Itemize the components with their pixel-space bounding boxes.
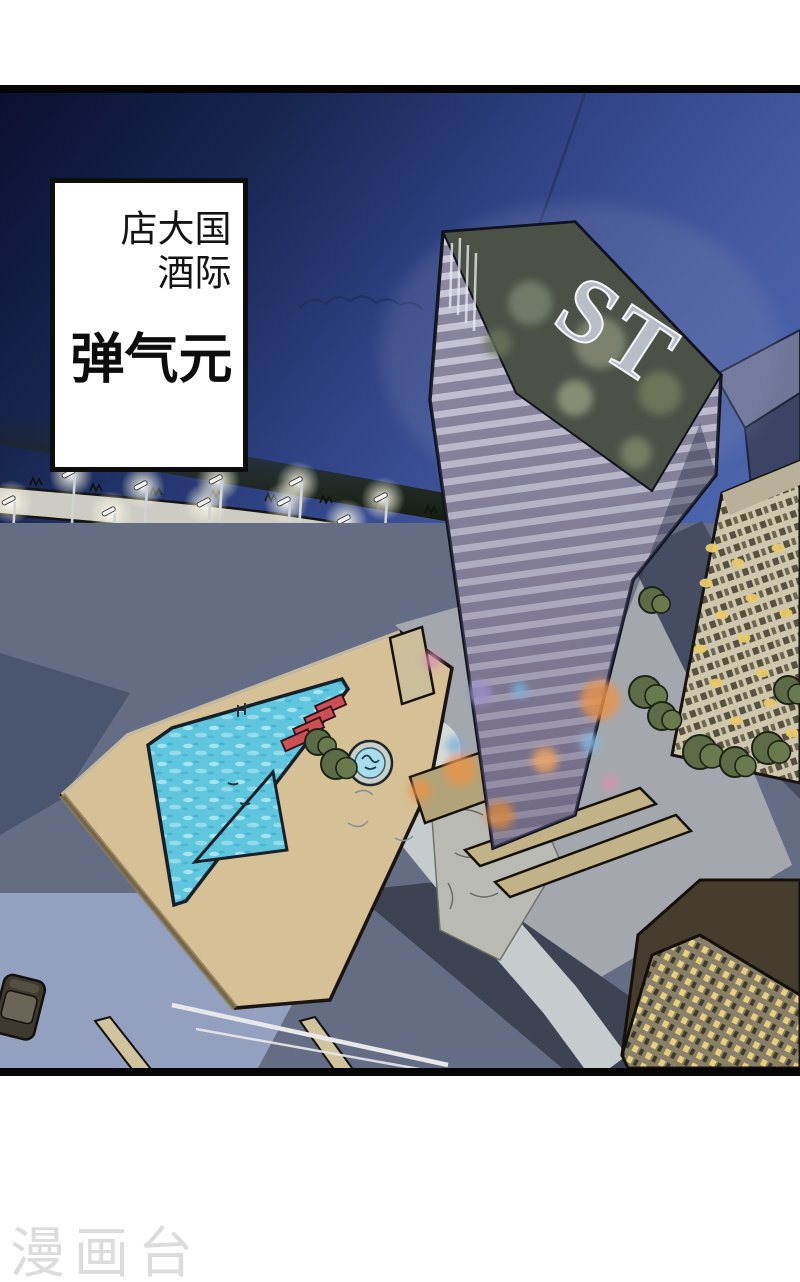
window-light — [780, 609, 793, 618]
caption-location-text: 国际大酒店 — [101, 209, 227, 330]
bokeh-light — [423, 651, 441, 669]
window-light — [786, 729, 799, 738]
bokeh-light — [512, 682, 528, 698]
window-light — [730, 717, 743, 726]
window-light — [694, 645, 707, 654]
bokeh-light — [444, 754, 476, 786]
window-light — [716, 611, 729, 620]
top-margin — [0, 0, 800, 85]
bokeh-light — [580, 680, 620, 720]
window-light — [746, 594, 759, 603]
caption-box: 国际大酒店 元气弹 — [50, 178, 248, 472]
comic-page: ST 国际大酒店 元气弹 漫画台 — [0, 0, 800, 1282]
window-light — [706, 544, 719, 553]
bush — [774, 676, 800, 704]
comic-panel: ST 国际大酒店 元气弹 — [0, 85, 800, 1076]
window-light — [756, 669, 769, 678]
bokeh-light — [446, 736, 464, 754]
bokeh-light — [468, 681, 492, 705]
bokeh-light — [580, 733, 600, 753]
window-light — [700, 579, 713, 588]
watermark-text: 漫画台 — [10, 1208, 202, 1282]
window-light — [710, 679, 723, 688]
caption-title-text: 元气弹 — [71, 330, 227, 441]
bokeh-light — [486, 801, 514, 829]
window-light — [732, 559, 745, 568]
window-light — [764, 699, 777, 708]
bokeh-light — [602, 775, 618, 791]
bokeh-light — [532, 747, 558, 773]
window-light — [738, 634, 751, 643]
window-light — [772, 544, 785, 553]
bokeh-light — [409, 779, 431, 801]
